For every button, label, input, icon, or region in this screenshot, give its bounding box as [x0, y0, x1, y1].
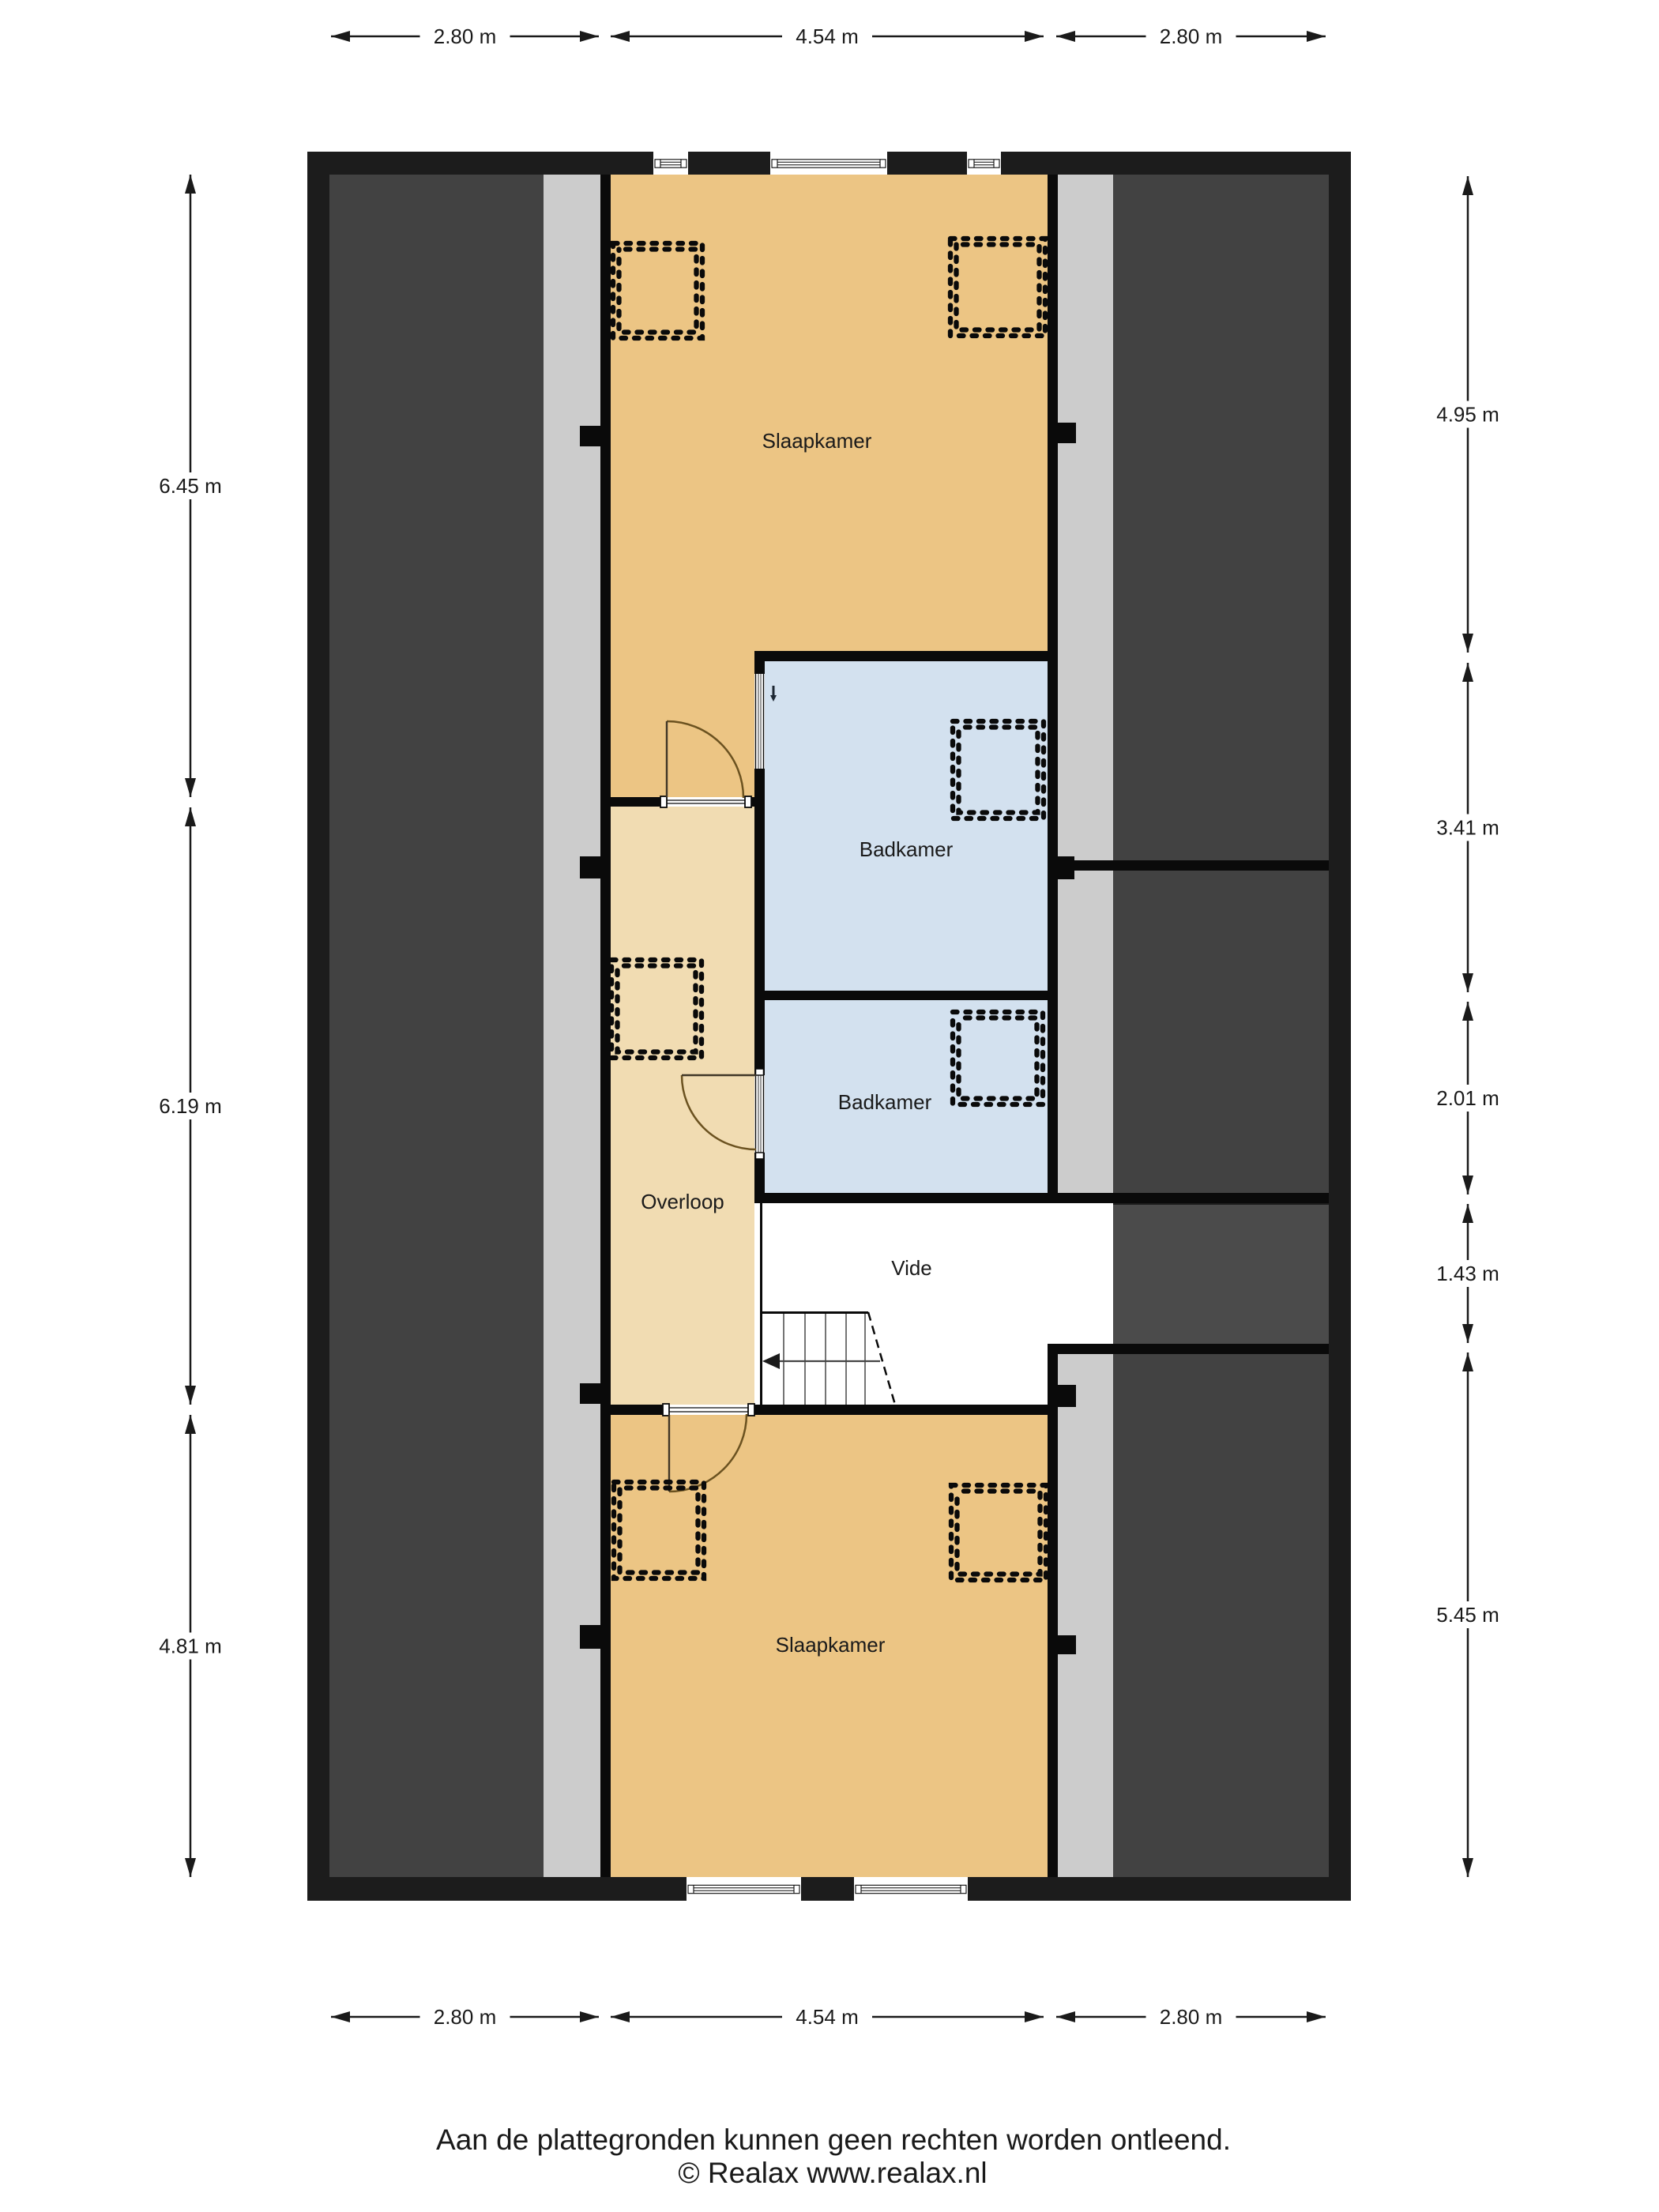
svg-text:4.95 m: 4.95 m — [1436, 403, 1499, 427]
svg-text:Slaapkamer: Slaapkamer — [776, 1633, 886, 1657]
svg-text:4.54 m: 4.54 m — [796, 2005, 859, 2029]
svg-text:Badkamer: Badkamer — [838, 1090, 932, 1114]
svg-text:4.81 m: 4.81 m — [159, 1635, 222, 1658]
svg-text:6.45 m: 6.45 m — [159, 474, 222, 498]
svg-text:6.19 m: 6.19 m — [159, 1094, 222, 1118]
svg-text:2.80 m: 2.80 m — [434, 2005, 497, 2029]
svg-text:3.41 m: 3.41 m — [1436, 816, 1499, 840]
svg-text:© Realax www.realax.nl: © Realax www.realax.nl — [678, 2157, 987, 2189]
svg-text:2.01 m: 2.01 m — [1436, 1086, 1499, 1110]
svg-text:5.45 m: 5.45 m — [1436, 1603, 1499, 1627]
svg-text:2.80 m: 2.80 m — [1160, 2005, 1223, 2029]
svg-text:Vide: Vide — [891, 1256, 932, 1280]
svg-text:Aan de plattegronden kunnen ge: Aan de plattegronden kunnen geen rechten… — [436, 2124, 1231, 2156]
svg-text:1.43 m: 1.43 m — [1436, 1262, 1499, 1285]
svg-text:Badkamer: Badkamer — [860, 837, 954, 861]
svg-text:Slaapkamer: Slaapkamer — [762, 429, 872, 453]
svg-text:2.80 m: 2.80 m — [1160, 24, 1223, 48]
svg-text:4.54 m: 4.54 m — [796, 24, 859, 48]
svg-text:2.80 m: 2.80 m — [434, 24, 497, 48]
svg-text:Overloop: Overloop — [641, 1190, 724, 1213]
